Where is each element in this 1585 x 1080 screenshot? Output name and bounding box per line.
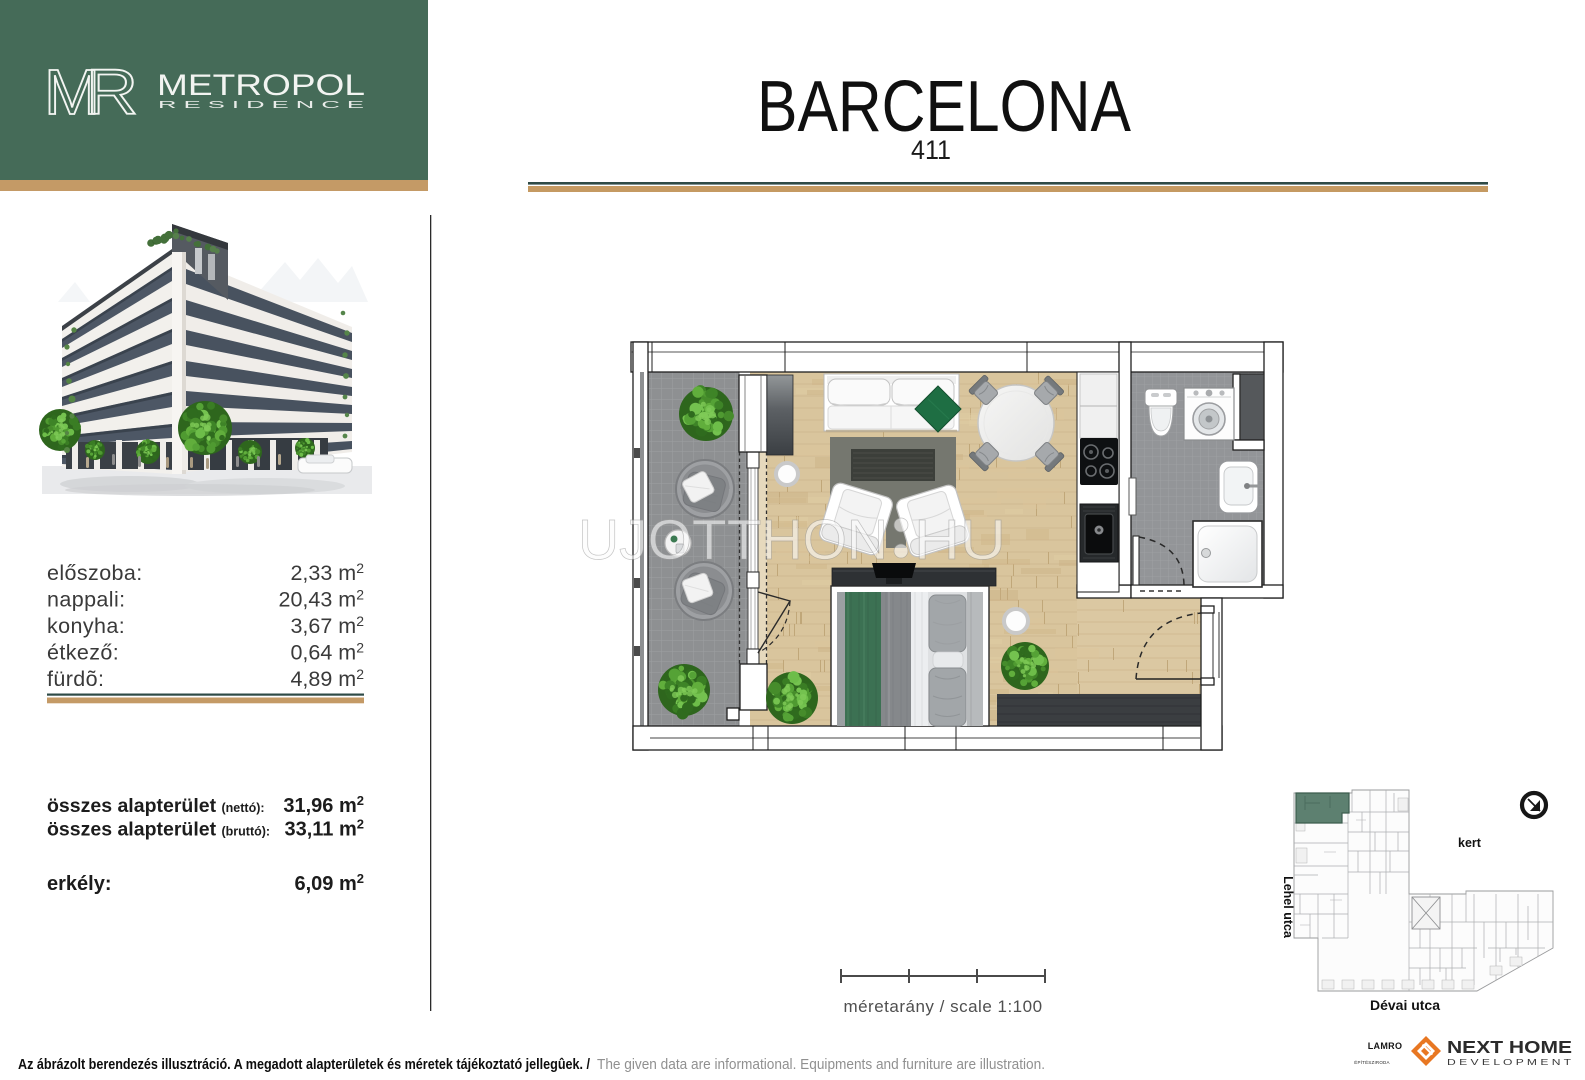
svg-text:kert: kert	[1458, 836, 1482, 850]
svg-text:összes alapterület (bruttó):: összes alapterület (bruttó):	[47, 819, 270, 841]
svg-text:ÉPÍTÉSZIRODA: ÉPÍTÉSZIRODA	[1354, 1059, 1389, 1065]
svg-text:NEXT HOME: NEXT HOME	[1447, 1037, 1572, 1057]
svg-text:2,33 m2: 2,33 m2	[290, 560, 364, 585]
svg-text:fürdõ:: fürdõ:	[47, 667, 104, 691]
svg-text:Az ábrázolt berendezés illuszt: Az ábrázolt berendezés illusztráció. A m…	[18, 1056, 1045, 1073]
svg-text:D E V E L O P M E N T: D E V E L O P M E N T	[1447, 1057, 1571, 1067]
svg-text:konyha:: konyha:	[47, 614, 125, 638]
svg-text:méretarány / scale 1:100: méretarány / scale 1:100	[843, 997, 1042, 1016]
svg-text:erkély:: erkély:	[47, 873, 112, 895]
svg-text:étkező:: étkező:	[47, 641, 119, 665]
svg-text:33,11 m2: 33,11 m2	[284, 817, 364, 841]
svg-text:előszoba:: előszoba:	[47, 561, 143, 585]
svg-text:R: R	[86, 56, 138, 128]
svg-text:LAMRO: LAMRO	[1368, 1041, 1403, 1051]
svg-text:UJOTTHON: UJOTTHON	[578, 508, 888, 572]
svg-text:6,09 m2: 6,09 m2	[295, 871, 365, 895]
svg-text:4,89 m2: 4,89 m2	[290, 666, 364, 691]
svg-text:METROPOL: METROPOL	[157, 69, 365, 102]
svg-text:Dévai utca: Dévai utca	[1370, 997, 1440, 1013]
svg-text:Lehel utca: Lehel utca	[1281, 876, 1295, 939]
svg-text:3,67 m2: 3,67 m2	[290, 613, 364, 638]
svg-text:összes alapterület (nettó):: összes alapterület (nettó):	[47, 795, 265, 817]
svg-text:411: 411	[911, 135, 951, 165]
svg-text:31,96 m2: 31,96 m2	[283, 793, 364, 817]
svg-text:R E S I D E N C E: R E S I D E N C E	[158, 99, 364, 111]
svg-text:HU: HU	[914, 508, 1006, 572]
svg-text:20,43 m2: 20,43 m2	[279, 587, 365, 612]
svg-text:0,64 m2: 0,64 m2	[290, 640, 364, 665]
svg-text:nappali:: nappali:	[47, 588, 126, 612]
